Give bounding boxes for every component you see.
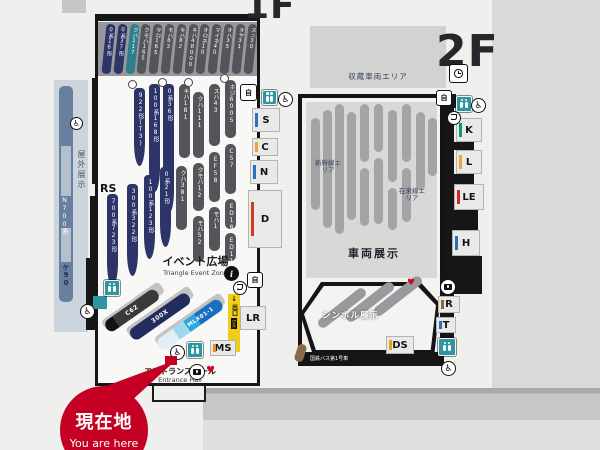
train-pill: クモハ12 [193, 163, 204, 211]
wheelchair-icon: ♿ [471, 98, 486, 113]
floor-map-sign: { "f1": { "title": "1F", "rs_label": "RS… [0, 0, 600, 450]
restroom-icon [456, 96, 472, 112]
shinkansen-area-label: 新幹線エリア [306, 160, 350, 175]
person-glyph [113, 286, 116, 292]
room-t: T [436, 317, 456, 333]
vending-glyph: 自 [245, 88, 252, 98]
person-glyph [266, 96, 269, 102]
restroom-icon [187, 342, 203, 358]
train-silhouette [374, 104, 383, 152]
train-pill: EF58 [209, 152, 220, 202]
person-glyph [465, 102, 468, 108]
vehicle-exhibit-label: 車両展示 [348, 248, 400, 261]
elevator-marker [93, 296, 107, 309]
down-arrow-icon: ↓ [231, 296, 237, 303]
train-pill: 100系123形 [144, 175, 155, 259]
stroller-glyph [451, 114, 458, 119]
room-l: L [456, 150, 482, 174]
room-label: LE [462, 192, 475, 203]
train-pill: ED18 [225, 199, 236, 229]
room-rs: RS [100, 183, 116, 196]
train-pill: 300系322形 [127, 184, 138, 276]
train-silhouette [374, 158, 383, 224]
room-h: H [452, 230, 480, 256]
wall-right [492, 0, 600, 450]
room-color-bar [441, 300, 444, 309]
aed-heart-icon: ♥ [407, 279, 415, 288]
vending-machine-icon: 自 [240, 84, 257, 101]
room-label: DS [392, 340, 408, 351]
wall-segment [452, 210, 478, 230]
stroller-icon [233, 281, 247, 295]
camera-icon [440, 279, 456, 295]
exit-en: Exit [231, 318, 237, 329]
floor-1-label: 1F [244, 0, 296, 27]
stroller-icon [447, 111, 461, 125]
restroom-icon [438, 338, 456, 356]
room-label: L [466, 157, 472, 168]
room-label: D [261, 214, 269, 225]
vending-machine-icon: 自 [247, 272, 263, 288]
stroller-glyph [237, 284, 244, 289]
room-label: C [261, 142, 268, 153]
room-color-bar [255, 142, 258, 152]
room-color-bar [459, 155, 462, 168]
train-segment [61, 146, 71, 196]
room-le: LE [454, 184, 484, 210]
train-pill: スハ43 [209, 84, 220, 146]
room-color-bar [255, 113, 258, 126]
loco-ke90-label: ケ90 [62, 264, 69, 287]
room-lr: LR [240, 306, 266, 330]
room-ds: DS [386, 336, 414, 354]
room-s: S [252, 108, 280, 132]
room-label: LR [246, 313, 260, 324]
circle-marker-icon [220, 74, 229, 83]
train-silhouette [360, 168, 369, 226]
room-label: R [445, 299, 453, 310]
you-are-here-en: You are here [70, 437, 139, 450]
room-d: D [248, 190, 282, 248]
room-label: S [262, 115, 269, 126]
room-color-bar [251, 202, 254, 236]
wheelchair-icon: ♿ [80, 304, 95, 319]
outdoor-exhibit-label: 屋外展示 [77, 150, 85, 190]
person-glyph [443, 345, 446, 351]
aed-heart-icon: ♥ [206, 366, 215, 376]
train-pill: キハ181 [179, 84, 190, 158]
vending-machine-icon: 自 [436, 90, 452, 106]
room-ms: MS [210, 340, 236, 356]
train-pill: ホジ6005 [225, 80, 236, 138]
room-color-bar [389, 340, 392, 350]
train-silhouette [428, 118, 437, 176]
room-color-bar [439, 321, 442, 329]
train-pill: クハ111 [193, 92, 204, 158]
room-c: C [252, 138, 278, 156]
clock-icon [449, 64, 468, 83]
train-pill: 922形(T3) [134, 88, 145, 166]
outdoor-train-label: N700系 [61, 196, 68, 235]
train-pill: C57 [225, 144, 236, 194]
restroom-icon [262, 90, 277, 105]
board-corner-box [62, 0, 86, 13]
floor-band [203, 388, 600, 450]
shinkansen-area-text: 新幹線エリア [315, 160, 341, 175]
info-icon: i [224, 266, 239, 281]
train-silhouette [388, 110, 397, 182]
person-glyph [460, 102, 463, 108]
train-silhouette [360, 104, 369, 162]
storage-area-panel: 収蔵車両エリア [310, 26, 446, 88]
room-r: R [438, 296, 460, 313]
room-color-bar [459, 123, 462, 136]
train-silhouette [416, 112, 425, 190]
person-glyph [448, 345, 451, 351]
wall-segment [452, 174, 474, 184]
room-color-bar [253, 165, 256, 178]
train-pill: モハ1 [209, 207, 220, 251]
conventional-area-text: 在来線エリア [399, 188, 425, 203]
clock-glyph [454, 69, 463, 78]
camera-glyph [444, 284, 452, 290]
exit-jp: 出口 [230, 304, 239, 316]
train-pill: クハ381 [176, 166, 187, 230]
room-label: MS [214, 343, 231, 354]
circle-marker-icon [128, 80, 137, 89]
room-color-bar [213, 344, 216, 352]
vending-glyph: 自 [252, 275, 259, 285]
person-glyph [196, 348, 199, 354]
wheelchair-icon: ♿ [278, 92, 293, 107]
person-glyph [191, 348, 194, 354]
you-are-here-jp: 現在地 [76, 408, 133, 434]
storage-area-label: 収蔵車両エリア [348, 71, 408, 82]
circle-marker-icon [184, 78, 193, 87]
wheelchair-icon: ♿ [441, 361, 456, 376]
room-label: H [462, 238, 470, 249]
restroom-icon [104, 280, 120, 296]
train-silhouette [402, 104, 411, 162]
room-label: K [465, 125, 473, 136]
you-are-here-tab [165, 356, 177, 365]
circle-marker-icon [158, 78, 167, 87]
jnr-bus-label: 国鉄バス第1号車 [310, 357, 348, 363]
room-label: N [260, 167, 268, 178]
symbol-exhibit-label: シンボル展示 [322, 312, 379, 322]
vending-glyph: 自 [441, 93, 448, 103]
room-label: T [443, 320, 450, 331]
train-pill: 0系21形 [160, 167, 171, 247]
conventional-area-label: 在来線エリア [392, 188, 432, 203]
person-glyph [270, 96, 273, 102]
room-color-bar [455, 236, 458, 250]
room-n: N [250, 160, 278, 184]
person-glyph [108, 286, 111, 292]
wheelchair-icon: ♿ [70, 117, 83, 130]
wall-segment [452, 142, 474, 150]
room-color-bar [457, 190, 460, 204]
train-pill: 700系723形 [107, 194, 118, 286]
